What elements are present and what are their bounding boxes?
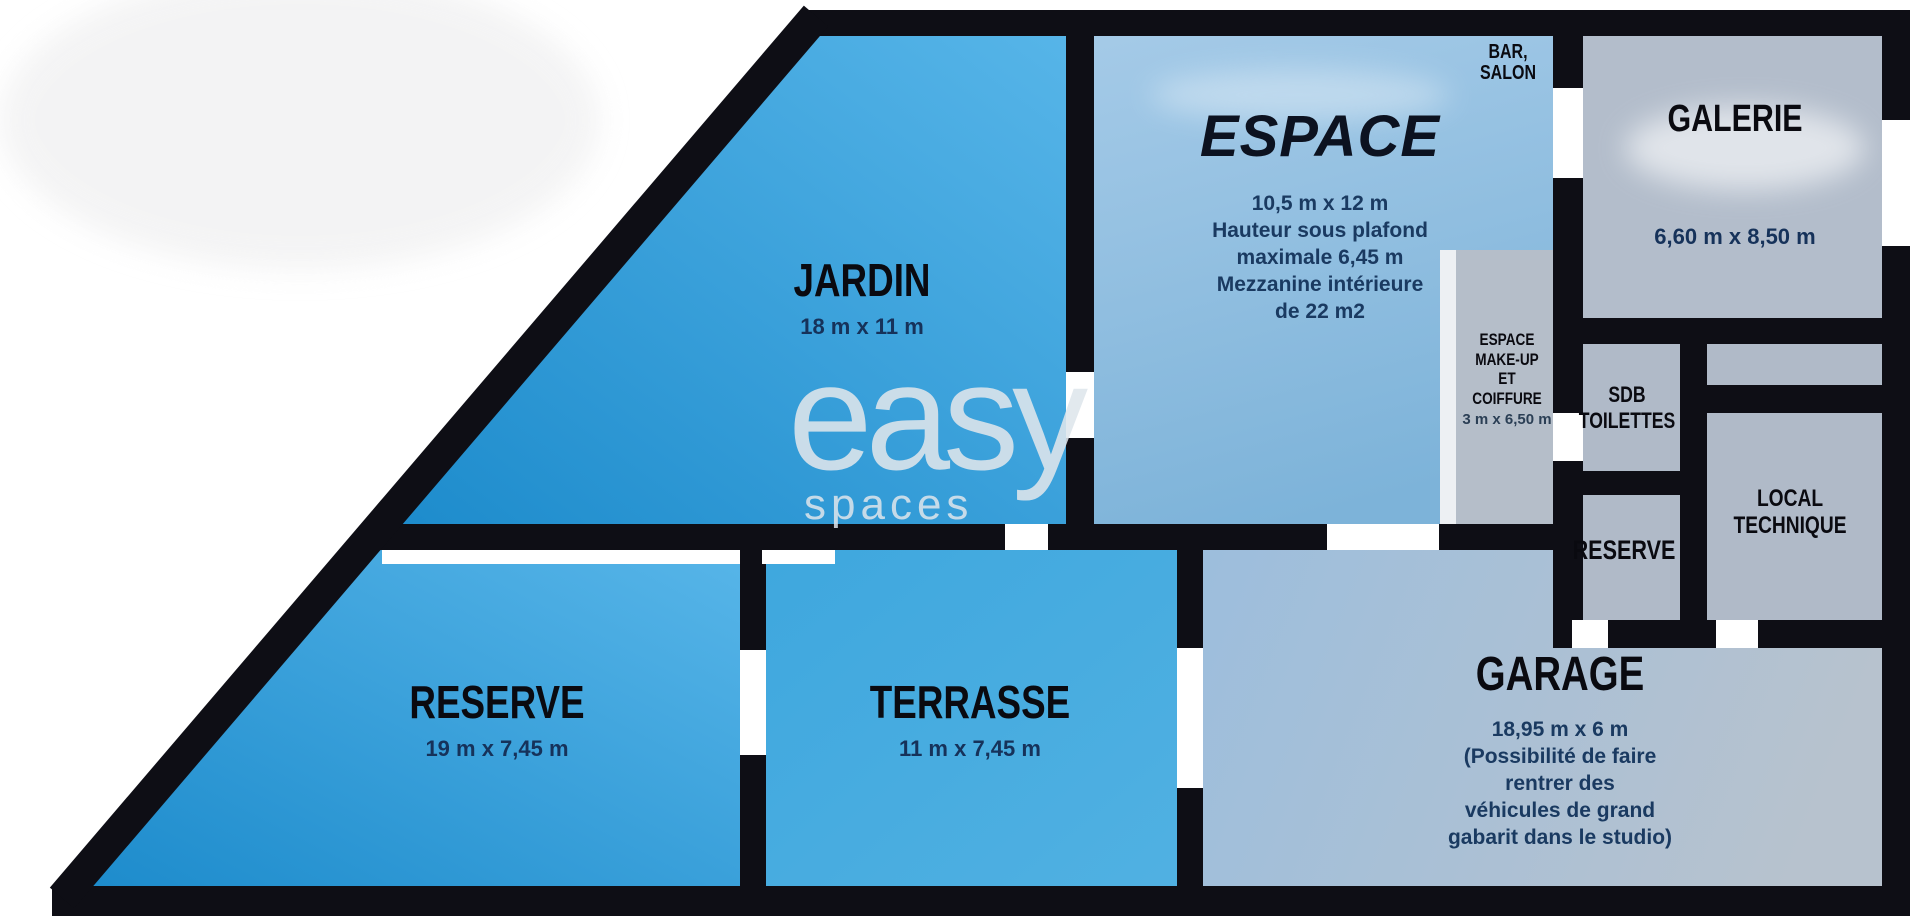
room-label-espace: ESPACE 10,5 m x 12 m Hauteur sous plafon… bbox=[1200, 108, 1440, 325]
terrasse-dims: 11 m x 7,45 m bbox=[845, 736, 1095, 762]
galerie-title: GALERIE bbox=[1667, 100, 1802, 140]
room-label-sdb: SDB TOILETTES bbox=[1567, 382, 1688, 433]
floor-plan: easy spaces JARDIN 18 m x 11 m ESPACE 10… bbox=[0, 0, 1920, 922]
room-label-terrasse: TERRASSE 11 m x 7,45 m bbox=[845, 678, 1095, 763]
makeup-dims: 3 m x 6,50 m bbox=[1462, 411, 1551, 428]
door-opening bbox=[1553, 88, 1583, 178]
room-label-makeup: ESPACE MAKE-UP ET COIFFURE 3 m x 6,50 m bbox=[1462, 330, 1551, 428]
sdb-line: TOILETTES bbox=[1579, 408, 1675, 434]
garage-note: véhicules de grand bbox=[1448, 797, 1672, 824]
door-opening bbox=[1177, 648, 1203, 788]
door-opening bbox=[1066, 372, 1094, 438]
garage-title: GARAGE bbox=[1470, 650, 1649, 700]
room-label-galerie: GALERIE 6,60 m x 8,50 m bbox=[1651, 100, 1820, 250]
garage-note: gabarit dans le studio) bbox=[1448, 824, 1672, 851]
door-opening bbox=[1716, 620, 1758, 648]
espace-dims: 10,5 m x 12 m bbox=[1200, 190, 1440, 217]
jardin-dims: 18 m x 11 m bbox=[776, 314, 947, 340]
makeup-line: ESPACE bbox=[1471, 330, 1542, 350]
espace-title: ESPACE bbox=[1200, 108, 1440, 166]
door-opening bbox=[1572, 620, 1608, 648]
espace-note: de 22 m2 bbox=[1200, 298, 1440, 325]
espace-note: Mezzanine intérieure bbox=[1200, 271, 1440, 298]
bar-salon-line: SALON bbox=[1480, 63, 1536, 84]
garage-note: (Possibilité de faire bbox=[1448, 743, 1672, 770]
wall-galerie-bottom bbox=[1553, 318, 1895, 344]
room-label-reserve-left: RESERVE 19 m x 7,45 m bbox=[387, 678, 606, 763]
door-opening bbox=[1882, 120, 1910, 246]
garage-note: rentrer des bbox=[1448, 770, 1672, 797]
room-label-local-technique: LOCAL TECHNIQUE bbox=[1719, 486, 1860, 540]
wall-top bbox=[800, 10, 1910, 36]
terrasse-title: TERRASSE bbox=[870, 678, 1070, 726]
room-label-reserve-right: RESERVE bbox=[1560, 536, 1689, 566]
door-opening bbox=[1005, 524, 1048, 550]
sdb-line: SDB bbox=[1579, 382, 1675, 408]
reserve-left-dims: 19 m x 7,45 m bbox=[387, 736, 606, 762]
makeup-line: ET bbox=[1471, 369, 1542, 389]
door-opening bbox=[1327, 524, 1439, 550]
makeup-line: MAKE-UP bbox=[1471, 350, 1542, 370]
page-smudge bbox=[0, 0, 600, 270]
wall-bottom bbox=[52, 886, 1910, 916]
wall-local-top bbox=[1680, 385, 1895, 413]
door-opening bbox=[740, 650, 766, 755]
garage-dims: 18,95 m x 6 m bbox=[1448, 716, 1672, 743]
espace-note: maximale 6,45 m bbox=[1200, 244, 1440, 271]
room-label-garage: GARAGE 18,95 m x 6 m (Possibilité de fai… bbox=[1448, 650, 1672, 851]
door-opening bbox=[762, 550, 835, 564]
galerie-dims: 6,60 m x 8,50 m bbox=[1651, 224, 1820, 250]
wall-sdb-bottom bbox=[1553, 471, 1707, 495]
room-label-bar-salon: BAR, SALON bbox=[1473, 42, 1543, 84]
wall-jardin-espace bbox=[1066, 20, 1094, 550]
reserve-right-title: RESERVE bbox=[1573, 536, 1676, 566]
door-opening bbox=[382, 550, 740, 564]
reserve-left-title: RESERVE bbox=[409, 678, 584, 726]
room-label-jardin: JARDIN 18 m x 11 m bbox=[776, 256, 947, 341]
makeup-corridor-divider bbox=[1440, 250, 1456, 545]
local-technique-line: LOCAL bbox=[1733, 486, 1846, 513]
local-technique-line: TECHNIQUE bbox=[1733, 513, 1846, 540]
jardin-title: JARDIN bbox=[794, 256, 931, 304]
bar-salon-line: BAR, bbox=[1480, 42, 1536, 63]
espace-note: Hauteur sous plafond bbox=[1200, 217, 1440, 244]
makeup-line: COIFFURE bbox=[1471, 389, 1542, 409]
